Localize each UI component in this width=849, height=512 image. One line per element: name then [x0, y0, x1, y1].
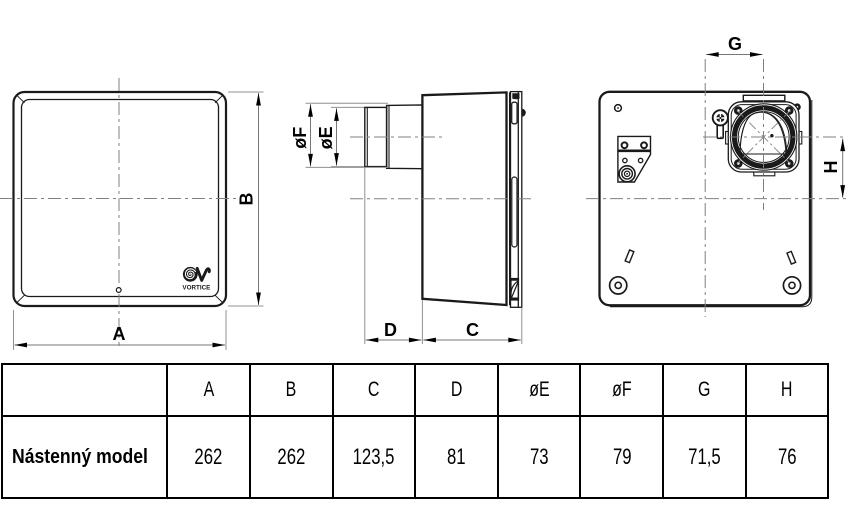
svg-text:B: B: [236, 193, 256, 206]
svg-text:D: D: [384, 320, 397, 340]
svg-text:H: H: [821, 161, 841, 174]
svg-text:C: C: [466, 320, 479, 340]
svg-text:G: G: [728, 34, 742, 54]
svg-text:VORTICE: VORTICE: [182, 285, 210, 292]
svg-text:øF: øF: [290, 127, 310, 149]
svg-text:øE: øE: [316, 126, 336, 149]
svg-text:A: A: [113, 324, 126, 344]
